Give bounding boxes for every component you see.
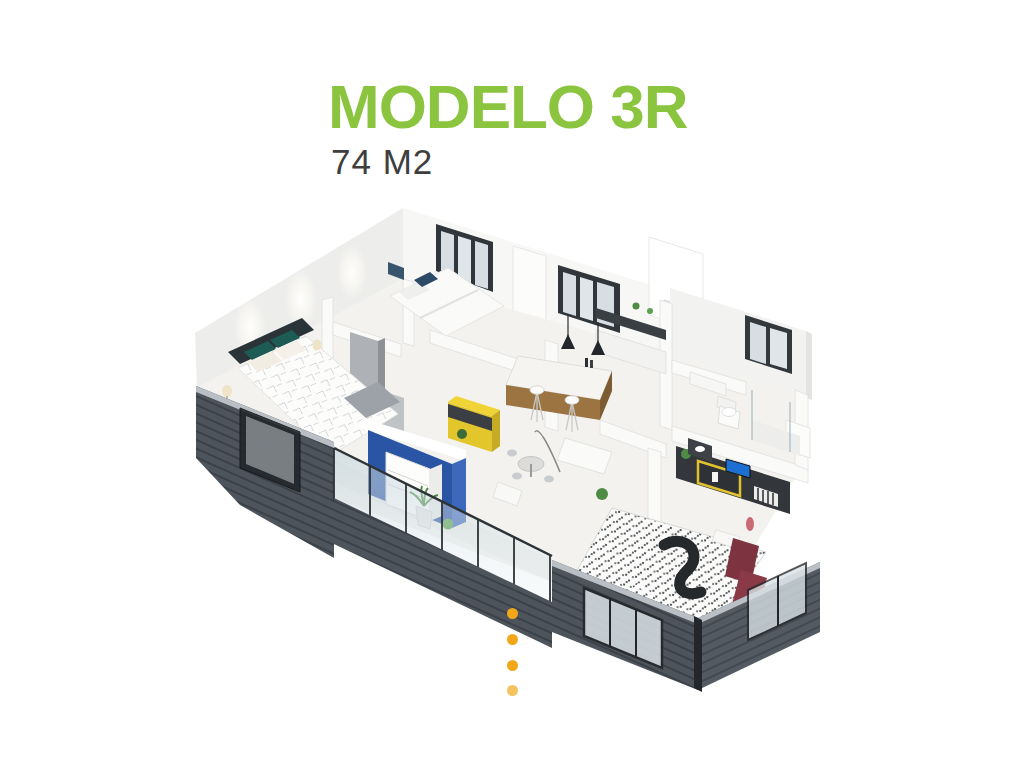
bedside-lamp xyxy=(222,385,232,397)
page-title: MODELO 3R xyxy=(328,76,688,138)
carousel-dots xyxy=(507,608,519,697)
carousel-dot[interactable] xyxy=(507,685,518,696)
vase xyxy=(712,472,718,482)
bar-stool xyxy=(565,396,579,404)
floor-plan-render xyxy=(170,185,835,700)
chair xyxy=(512,473,522,480)
chair xyxy=(544,476,554,483)
carousel-dot[interactable] xyxy=(507,634,518,645)
sink xyxy=(695,446,705,452)
carousel-dot[interactable] xyxy=(507,660,518,671)
carousel-dot[interactable] xyxy=(507,608,518,619)
wine-bottle xyxy=(585,358,588,367)
toilet-seat xyxy=(722,408,736,417)
pink-figure xyxy=(746,517,754,531)
plant xyxy=(457,429,467,439)
bedside-lamp xyxy=(313,340,322,351)
area-subtitle: 74 M2 xyxy=(331,144,433,179)
console-side xyxy=(492,410,500,452)
chair xyxy=(507,450,517,457)
wine-bottle xyxy=(590,360,593,368)
counter-plant xyxy=(633,303,640,310)
bar-stool xyxy=(530,386,544,394)
slide-canvas: MODELO 3R 74 M2 xyxy=(0,0,1024,768)
floor-plan-svg xyxy=(170,185,835,700)
plant xyxy=(596,488,608,500)
corner-post xyxy=(694,616,702,692)
counter-plant xyxy=(647,308,653,314)
right-wing-edge xyxy=(806,331,812,400)
